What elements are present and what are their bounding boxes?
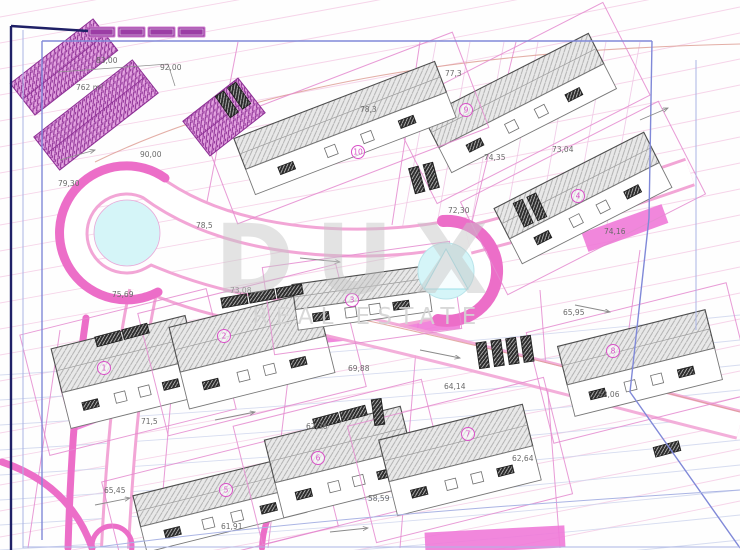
parking-chip [178, 27, 205, 37]
flow-arrow [330, 528, 368, 532]
terrace-detail [263, 363, 276, 375]
building-number: 8 [611, 347, 616, 356]
parking-chip [88, 27, 115, 37]
building-number: 7 [466, 430, 471, 439]
elevation-label: 65,95 [563, 308, 585, 317]
site-plan-canvas: 83,0092,00762 m²90,0079,3078,578,377,374… [0, 0, 740, 550]
terrace-detail [202, 517, 215, 529]
building-number: 9 [464, 106, 469, 115]
roundabout-circle [94, 200, 160, 266]
watermark-subtitle: REAL ESTATE [252, 304, 483, 330]
terrace-detail [352, 474, 365, 486]
elevation-label: 90,00 [140, 150, 162, 159]
elevation-label: 62,64 [512, 454, 534, 463]
building-number: 5 [224, 486, 229, 495]
terrace-detail [328, 480, 341, 492]
terrace-detail [237, 370, 250, 382]
elevation-label: 78,5 [196, 221, 213, 230]
car-stall [423, 162, 439, 190]
building-number: 6 [316, 454, 321, 463]
watermark: DUX REAL ESTATE [214, 204, 509, 330]
elevation-label: 79,30 [58, 179, 80, 188]
building-number: 10 [353, 148, 363, 157]
sidewalk-strip [425, 525, 566, 550]
elevation-label: 62,06 [598, 390, 620, 399]
site-plan-svg: 83,0092,00762 m²90,0079,3078,578,377,374… [0, 0, 740, 550]
terrace-detail [231, 510, 244, 522]
terrace-detail [651, 373, 664, 385]
contour-line [0, 0, 740, 17]
terrace-detail [114, 391, 127, 403]
elevation-label: 92,00 [160, 63, 182, 72]
elevation-label: 83,00 [96, 56, 118, 65]
parking-chip [118, 27, 145, 37]
building-number: 1 [102, 364, 107, 373]
elevation-label: 61,91 [221, 522, 243, 531]
elevation-label: 69,88 [348, 364, 370, 373]
flow-arrow [640, 108, 668, 120]
building-number: 2 [222, 332, 227, 341]
terrace-detail [138, 385, 151, 397]
elevation-label: 64,14 [444, 382, 466, 391]
elevation-label: 62,36 [306, 422, 328, 431]
elevation-label: 71,5 [141, 417, 158, 426]
elevation-label: 762 m² [76, 83, 103, 92]
parking-chip [148, 27, 175, 37]
elevation-label: 58,59 [368, 494, 390, 503]
elevation-label: 74,35 [484, 153, 506, 162]
elevation-label: 75,69 [112, 290, 134, 299]
elevation-label: 74,16 [604, 227, 626, 236]
elevation-label: 65,45 [104, 486, 126, 495]
elevation-label: 78,3 [360, 105, 377, 114]
terrace-detail [445, 478, 458, 490]
building-number: 4 [576, 192, 581, 201]
watermark-title: DUX [214, 204, 509, 316]
elevation-label: 77,3 [445, 69, 462, 78]
parking-chips [88, 27, 205, 37]
terrace-detail [471, 472, 484, 484]
elevation-label: 73,04 [552, 145, 574, 154]
southwest-arc [2, 462, 92, 548]
